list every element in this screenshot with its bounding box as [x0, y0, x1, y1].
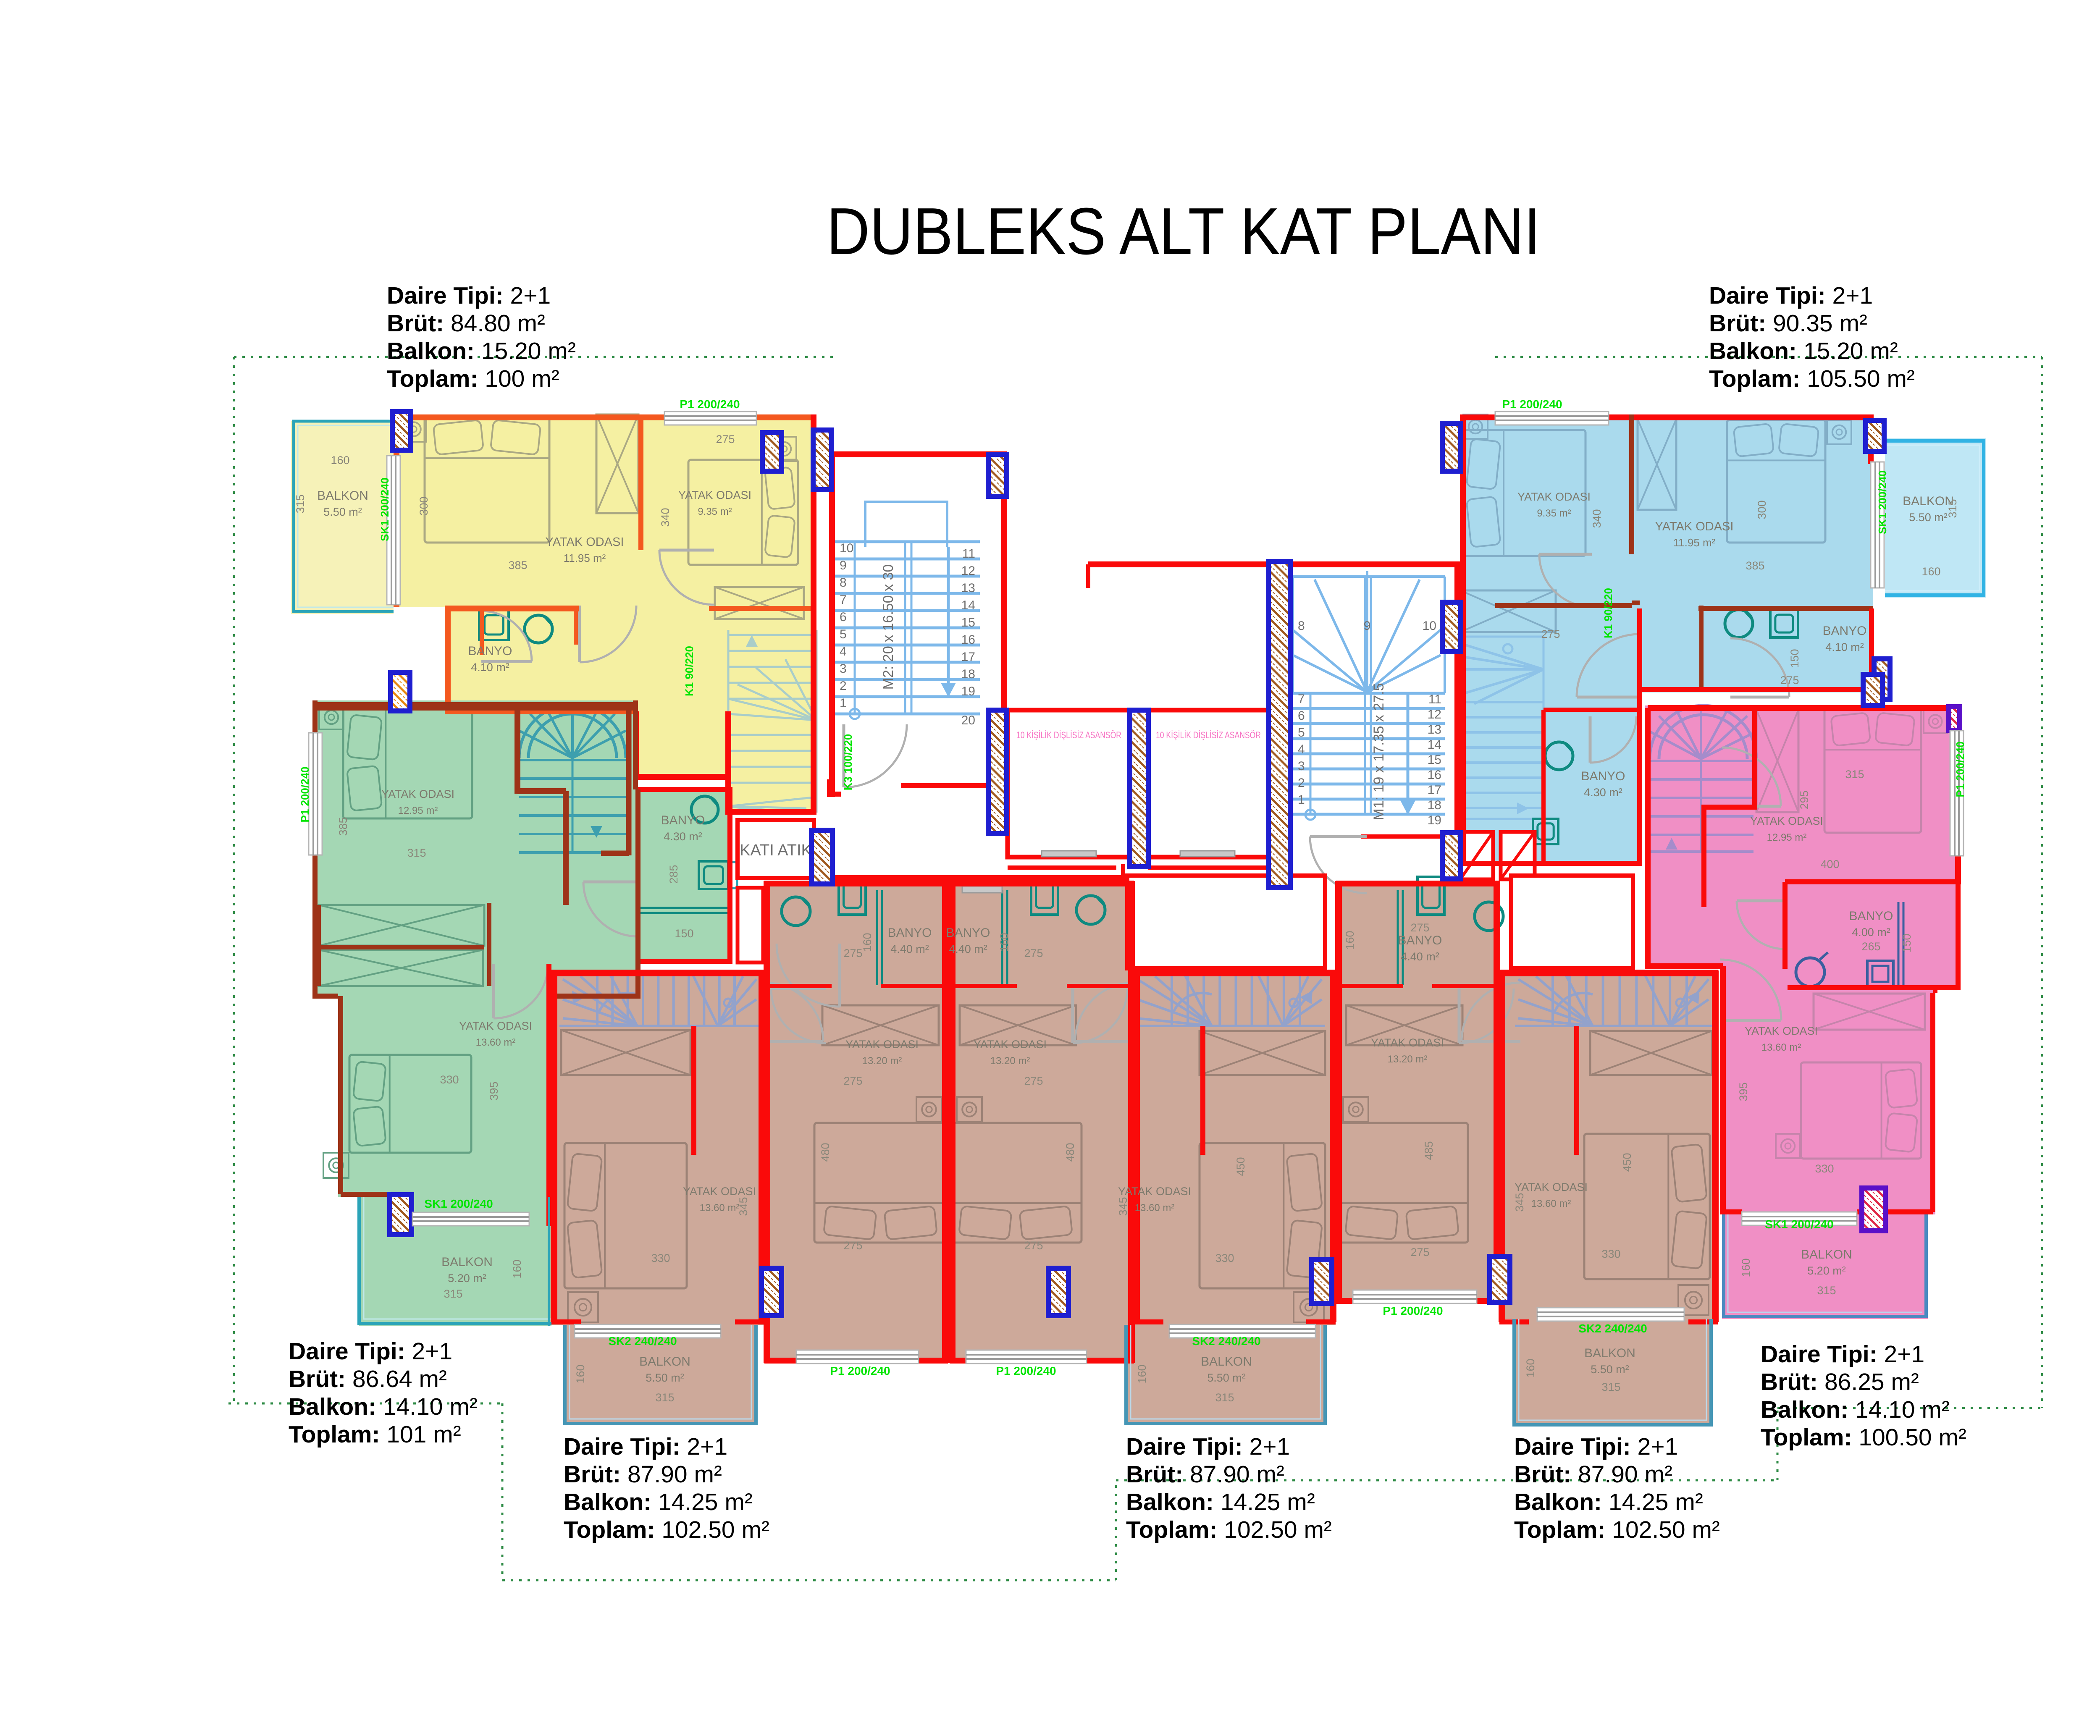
- svg-text:BALKON: BALKON: [441, 1255, 493, 1269]
- svg-text:BANYO: BANYO: [661, 813, 705, 827]
- svg-text:P1 200/240: P1 200/240: [1383, 1304, 1443, 1317]
- svg-text:BALKON: BALKON: [1801, 1248, 1852, 1261]
- svg-text:4.40 m²: 4.40 m²: [1401, 950, 1439, 963]
- svg-text:385: 385: [1746, 559, 1764, 572]
- svg-text:Brüt: 86.25 m²: Brüt: 86.25 m²: [1761, 1369, 1919, 1395]
- svg-text:19: 19: [961, 684, 975, 698]
- svg-text:13.20 m²: 13.20 m²: [1388, 1054, 1428, 1065]
- svg-text:150: 150: [1788, 649, 1801, 668]
- svg-text:4.10 m²: 4.10 m²: [471, 661, 509, 674]
- svg-text:SK1 200/240: SK1 200/240: [1765, 1218, 1833, 1231]
- svg-text:4.40 m²: 4.40 m²: [949, 943, 987, 955]
- svg-text:Brüt: 84.80 m²: Brüt: 84.80 m²: [387, 310, 545, 337]
- svg-text:13.20 m²: 13.20 m²: [862, 1055, 902, 1067]
- svg-text:1: 1: [1298, 793, 1305, 807]
- svg-text:450: 450: [1621, 1153, 1633, 1172]
- svg-text:485: 485: [1423, 1141, 1435, 1160]
- svg-text:BALKON: BALKON: [1584, 1346, 1635, 1360]
- svg-text:160: 160: [998, 933, 1011, 952]
- svg-text:395: 395: [1737, 1082, 1750, 1101]
- svg-text:400: 400: [1820, 858, 1839, 871]
- svg-text:160: 160: [1524, 1358, 1537, 1377]
- svg-text:5.20 m²: 5.20 m²: [448, 1272, 486, 1285]
- svg-text:17: 17: [1428, 783, 1441, 797]
- svg-text:11.95 m²: 11.95 m²: [564, 552, 606, 564]
- svg-text:YATAK ODASI: YATAK ODASI: [459, 1020, 532, 1032]
- svg-text:330: 330: [1601, 1248, 1620, 1260]
- svg-text:Daire Tipi: 2+1: Daire Tipi: 2+1: [387, 282, 551, 309]
- svg-text:315: 315: [1817, 1284, 1836, 1297]
- svg-text:Toplam: 100.50 m²: Toplam: 100.50 m²: [1761, 1424, 1966, 1451]
- svg-text:330: 330: [651, 1252, 670, 1264]
- svg-text:Brüt: 87.90 m²: Brüt: 87.90 m²: [1514, 1461, 1672, 1488]
- svg-text:16: 16: [961, 633, 975, 647]
- svg-text:BANYO: BANYO: [1398, 934, 1442, 947]
- svg-text:300: 300: [1756, 500, 1768, 519]
- svg-text:315: 315: [407, 847, 426, 859]
- svg-text:Toplam: 101 m²: Toplam: 101 m²: [289, 1421, 461, 1448]
- svg-text:13.60 m²: 13.60 m²: [1761, 1042, 1801, 1053]
- svg-text:385: 385: [508, 559, 527, 572]
- svg-text:7: 7: [840, 593, 847, 607]
- svg-text:275: 275: [716, 433, 735, 446]
- svg-text:Brüt: 87.90 m²: Brüt: 87.90 m²: [564, 1461, 722, 1488]
- svg-text:480: 480: [819, 1143, 832, 1162]
- svg-text:YATAK ODASI: YATAK ODASI: [1655, 520, 1734, 533]
- svg-text:Daire Tipi: 2+1: Daire Tipi: 2+1: [289, 1338, 452, 1365]
- svg-text:160: 160: [331, 454, 349, 467]
- svg-text:Toplam: 102.50 m²: Toplam: 102.50 m²: [1126, 1516, 1332, 1543]
- svg-text:300: 300: [417, 496, 430, 515]
- svg-text:DUBLEKS ALT KAT PLANI: DUBLEKS ALT KAT PLANI: [827, 194, 1541, 268]
- svg-text:5: 5: [840, 627, 847, 641]
- svg-text:BALKON: BALKON: [639, 1355, 690, 1369]
- svg-text:13.60 m²: 13.60 m²: [700, 1202, 740, 1214]
- svg-text:YATAK ODASI: YATAK ODASI: [1750, 815, 1823, 827]
- svg-text:12.95 m²: 12.95 m²: [398, 805, 438, 816]
- svg-text:10: 10: [840, 541, 853, 555]
- svg-text:YATAK ODASI: YATAK ODASI: [1371, 1036, 1444, 1049]
- svg-text:YATAK ODASI: YATAK ODASI: [974, 1038, 1047, 1051]
- svg-text:YATAK ODASI: YATAK ODASI: [845, 1038, 919, 1051]
- svg-text:340: 340: [659, 508, 672, 527]
- svg-text:Balkon: 14.25 m²: Balkon: 14.25 m²: [1126, 1489, 1315, 1516]
- svg-text:YATAK ODASI: YATAK ODASI: [1517, 490, 1591, 503]
- svg-text:12.95 m²: 12.95 m²: [1767, 832, 1807, 843]
- svg-text:5.50 m²: 5.50 m²: [1207, 1371, 1246, 1384]
- svg-text:SK2 240/240: SK2 240/240: [608, 1335, 677, 1348]
- svg-text:14: 14: [1428, 738, 1441, 752]
- svg-text:M1: 19 x 17.35 x 27.5: M1: 19 x 17.35 x 27.5: [1371, 683, 1387, 821]
- svg-text:275: 275: [1410, 1246, 1429, 1259]
- svg-text:2: 2: [1298, 776, 1305, 790]
- svg-text:450: 450: [1234, 1157, 1247, 1176]
- svg-text:K1 90/220: K1 90/220: [1602, 588, 1614, 638]
- svg-text:315: 315: [1845, 768, 1864, 781]
- svg-text:5.50 m²: 5.50 m²: [1909, 511, 1948, 524]
- svg-text:275: 275: [1024, 1075, 1043, 1087]
- svg-text:Daire Tipi: 2+1: Daire Tipi: 2+1: [564, 1433, 727, 1460]
- svg-text:160: 160: [1136, 1364, 1148, 1383]
- svg-text:4.30 m²: 4.30 m²: [1584, 786, 1622, 799]
- svg-text:BANYO: BANYO: [887, 926, 932, 940]
- svg-text:Daire Tipi: 2+1: Daire Tipi: 2+1: [1126, 1433, 1290, 1460]
- svg-text:YATAK ODASI: YATAK ODASI: [1745, 1025, 1818, 1037]
- svg-text:2: 2: [840, 679, 847, 693]
- svg-text:160: 160: [1921, 565, 1940, 578]
- svg-text:YATAK ODASI: YATAK ODASI: [381, 788, 454, 800]
- svg-text:P1 200/240: P1 200/240: [680, 398, 740, 411]
- svg-text:8: 8: [840, 576, 847, 590]
- svg-text:4: 4: [840, 645, 847, 658]
- svg-text:SK2 240/240: SK2 240/240: [1192, 1335, 1260, 1348]
- svg-text:150: 150: [675, 927, 693, 940]
- svg-text:8: 8: [1298, 619, 1305, 633]
- svg-text:265: 265: [1861, 940, 1880, 953]
- svg-text:330: 330: [440, 1073, 459, 1086]
- svg-text:315: 315: [1215, 1391, 1234, 1404]
- svg-text:1: 1: [840, 696, 847, 710]
- svg-text:SK1 200/240: SK1 200/240: [1876, 470, 1889, 534]
- svg-text:Balkon: 14.10 m²: Balkon: 14.10 m²: [289, 1393, 478, 1420]
- svg-text:4.30 m²: 4.30 m²: [664, 830, 702, 843]
- svg-text:13.60 m²: 13.60 m²: [476, 1037, 516, 1048]
- svg-text:YATAK ODASI: YATAK ODASI: [683, 1185, 756, 1198]
- svg-text:Daire Tipi: 2+1: Daire Tipi: 2+1: [1514, 1433, 1678, 1460]
- svg-text:395: 395: [488, 1081, 500, 1100]
- svg-text:315: 315: [444, 1288, 462, 1300]
- svg-text:480: 480: [1064, 1143, 1076, 1162]
- svg-text:9: 9: [1364, 619, 1371, 633]
- svg-text:15: 15: [961, 616, 975, 629]
- svg-text:5.50 m²: 5.50 m²: [646, 1371, 684, 1384]
- svg-text:5.50 m²: 5.50 m²: [323, 506, 362, 518]
- svg-text:13: 13: [961, 581, 975, 595]
- svg-text:13.60 m²: 13.60 m²: [1531, 1198, 1571, 1209]
- svg-text:315: 315: [655, 1391, 674, 1404]
- svg-text:5.50 m²: 5.50 m²: [1591, 1363, 1629, 1376]
- svg-text:20: 20: [961, 713, 975, 727]
- svg-text:13.20 m²: 13.20 m²: [990, 1055, 1030, 1067]
- svg-text:BANYO: BANYO: [468, 644, 512, 658]
- svg-text:6: 6: [1298, 709, 1305, 723]
- svg-text:P1 200/240: P1 200/240: [996, 1364, 1056, 1377]
- svg-text:Toplam: 102.50 m²: Toplam: 102.50 m²: [564, 1516, 769, 1543]
- svg-text:Toplam: 105.50 m²: Toplam: 105.50 m²: [1709, 365, 1915, 392]
- svg-text:BANYO: BANYO: [1581, 769, 1625, 783]
- svg-text:11: 11: [962, 547, 975, 561]
- svg-text:275: 275: [843, 1075, 862, 1087]
- svg-text:15: 15: [1428, 753, 1441, 767]
- svg-text:11: 11: [1428, 692, 1441, 706]
- svg-text:19: 19: [1428, 813, 1441, 827]
- svg-text:12: 12: [961, 564, 975, 578]
- svg-text:3: 3: [1298, 759, 1305, 773]
- svg-text:Daire Tipi: 2+1: Daire Tipi: 2+1: [1709, 282, 1873, 309]
- svg-text:315: 315: [1601, 1381, 1620, 1393]
- svg-text:4.40 m²: 4.40 m²: [890, 943, 929, 955]
- svg-text:KATI ATIK: KATI ATIK: [740, 842, 812, 859]
- svg-text:YATAK ODASI: YATAK ODASI: [678, 489, 751, 501]
- svg-text:Daire Tipi: 2+1: Daire Tipi: 2+1: [1761, 1341, 1924, 1368]
- svg-text:275: 275: [1024, 1239, 1043, 1252]
- svg-text:4: 4: [1298, 742, 1305, 756]
- svg-text:7: 7: [1298, 692, 1305, 706]
- svg-text:345: 345: [737, 1197, 750, 1216]
- svg-text:YATAK ODASI: YATAK ODASI: [1515, 1181, 1588, 1193]
- svg-text:Brüt: 90.35 m²: Brüt: 90.35 m²: [1709, 310, 1867, 337]
- svg-text:Toplam: 102.50 m²: Toplam: 102.50 m²: [1514, 1516, 1720, 1543]
- svg-text:385: 385: [337, 817, 349, 836]
- svg-text:315: 315: [294, 494, 307, 513]
- svg-text:9: 9: [840, 559, 847, 572]
- svg-text:285: 285: [667, 865, 680, 884]
- svg-text:18: 18: [961, 667, 975, 681]
- svg-text:18: 18: [1428, 798, 1441, 812]
- svg-text:P1 200/240: P1 200/240: [299, 766, 311, 822]
- svg-text:9.35 m²: 9.35 m²: [1537, 508, 1571, 519]
- svg-text:K3 100/220: K3 100/220: [842, 734, 854, 790]
- svg-text:M2: 20 x 16.50 x 30: M2: 20 x 16.50 x 30: [880, 564, 896, 690]
- svg-text:K1 90/220: K1 90/220: [683, 646, 696, 696]
- svg-text:330: 330: [1215, 1252, 1234, 1264]
- svg-text:11.95 m²: 11.95 m²: [1673, 536, 1716, 549]
- svg-text:160: 160: [574, 1364, 587, 1383]
- svg-text:17: 17: [961, 650, 975, 664]
- svg-text:345: 345: [1513, 1193, 1526, 1212]
- svg-text:9.35 m²: 9.35 m²: [698, 506, 732, 517]
- svg-text:275: 275: [843, 947, 862, 960]
- svg-text:10: 10: [1423, 619, 1436, 633]
- svg-text:BANYO: BANYO: [946, 926, 990, 940]
- svg-text:10 KİŞİLİK DİŞLİSİZ ASANSÖR: 10 KİŞİLİK DİŞLİSİZ ASANSÖR: [1156, 730, 1261, 740]
- svg-text:Balkon: 15.20 m²: Balkon: 15.20 m²: [1709, 338, 1898, 365]
- svg-text:150: 150: [1900, 934, 1913, 952]
- svg-text:6: 6: [840, 610, 847, 624]
- svg-text:Brüt: 86.64 m²: Brüt: 86.64 m²: [289, 1366, 447, 1392]
- svg-text:315: 315: [1946, 499, 1959, 518]
- svg-text:YATAK ODASI: YATAK ODASI: [1118, 1185, 1191, 1198]
- svg-text:BANYO: BANYO: [1822, 624, 1866, 638]
- svg-text:13.60 m²: 13.60 m²: [1135, 1202, 1175, 1214]
- svg-text:BALKON: BALKON: [317, 489, 368, 503]
- svg-text:16: 16: [1428, 768, 1441, 782]
- svg-text:SK2 240/240: SK2 240/240: [1578, 1322, 1647, 1335]
- svg-text:275: 275: [843, 1239, 862, 1252]
- svg-text:330: 330: [1815, 1162, 1834, 1175]
- svg-text:295: 295: [1798, 790, 1811, 809]
- svg-text:275: 275: [1410, 921, 1429, 934]
- svg-text:YATAK ODASI: YATAK ODASI: [546, 535, 624, 549]
- svg-text:Balkon: 14.25 m²: Balkon: 14.25 m²: [564, 1489, 753, 1516]
- svg-text:P1 200/240: P1 200/240: [1502, 398, 1562, 411]
- svg-text:275: 275: [1024, 947, 1043, 960]
- svg-text:160: 160: [861, 933, 874, 952]
- svg-text:SK1 200/240: SK1 200/240: [424, 1197, 493, 1210]
- svg-text:160: 160: [1740, 1258, 1752, 1277]
- svg-text:4.10 m²: 4.10 m²: [1825, 641, 1864, 653]
- svg-text:10 KİŞİLİK DİŞLİSİZ ASANSÖR: 10 KİŞİLİK DİŞLİSİZ ASANSÖR: [1016, 730, 1121, 740]
- svg-text:BANYO: BANYO: [1849, 909, 1893, 923]
- svg-text:P1 200/240: P1 200/240: [1954, 741, 1966, 797]
- svg-text:Brüt: 87.90 m²: Brüt: 87.90 m²: [1126, 1461, 1284, 1488]
- svg-text:P1 200/240: P1 200/240: [830, 1364, 890, 1377]
- svg-text:13: 13: [1428, 723, 1441, 737]
- svg-text:14: 14: [961, 598, 975, 612]
- svg-text:Balkon: 15.20 m²: Balkon: 15.20 m²: [387, 338, 576, 365]
- svg-text:Balkon: 14.25 m²: Balkon: 14.25 m²: [1514, 1489, 1703, 1516]
- svg-text:12: 12: [1428, 708, 1441, 721]
- svg-text:Balkon: 14.10 m²: Balkon: 14.10 m²: [1761, 1396, 1950, 1423]
- svg-text:345: 345: [1117, 1197, 1129, 1216]
- svg-text:3: 3: [840, 662, 847, 676]
- svg-text:Toplam: 100 m²: Toplam: 100 m²: [387, 365, 559, 392]
- svg-text:SK1 200/240: SK1 200/240: [378, 477, 391, 541]
- svg-text:160: 160: [1344, 931, 1356, 949]
- svg-text:275: 275: [1780, 674, 1799, 687]
- svg-text:4.00 m²: 4.00 m²: [1852, 926, 1890, 939]
- svg-text:340: 340: [1591, 509, 1603, 528]
- svg-text:5: 5: [1298, 726, 1305, 740]
- svg-text:275: 275: [1541, 628, 1560, 640]
- svg-text:BALKON: BALKON: [1201, 1355, 1252, 1369]
- svg-text:5.20 m²: 5.20 m²: [1807, 1264, 1846, 1277]
- svg-text:160: 160: [511, 1259, 523, 1278]
